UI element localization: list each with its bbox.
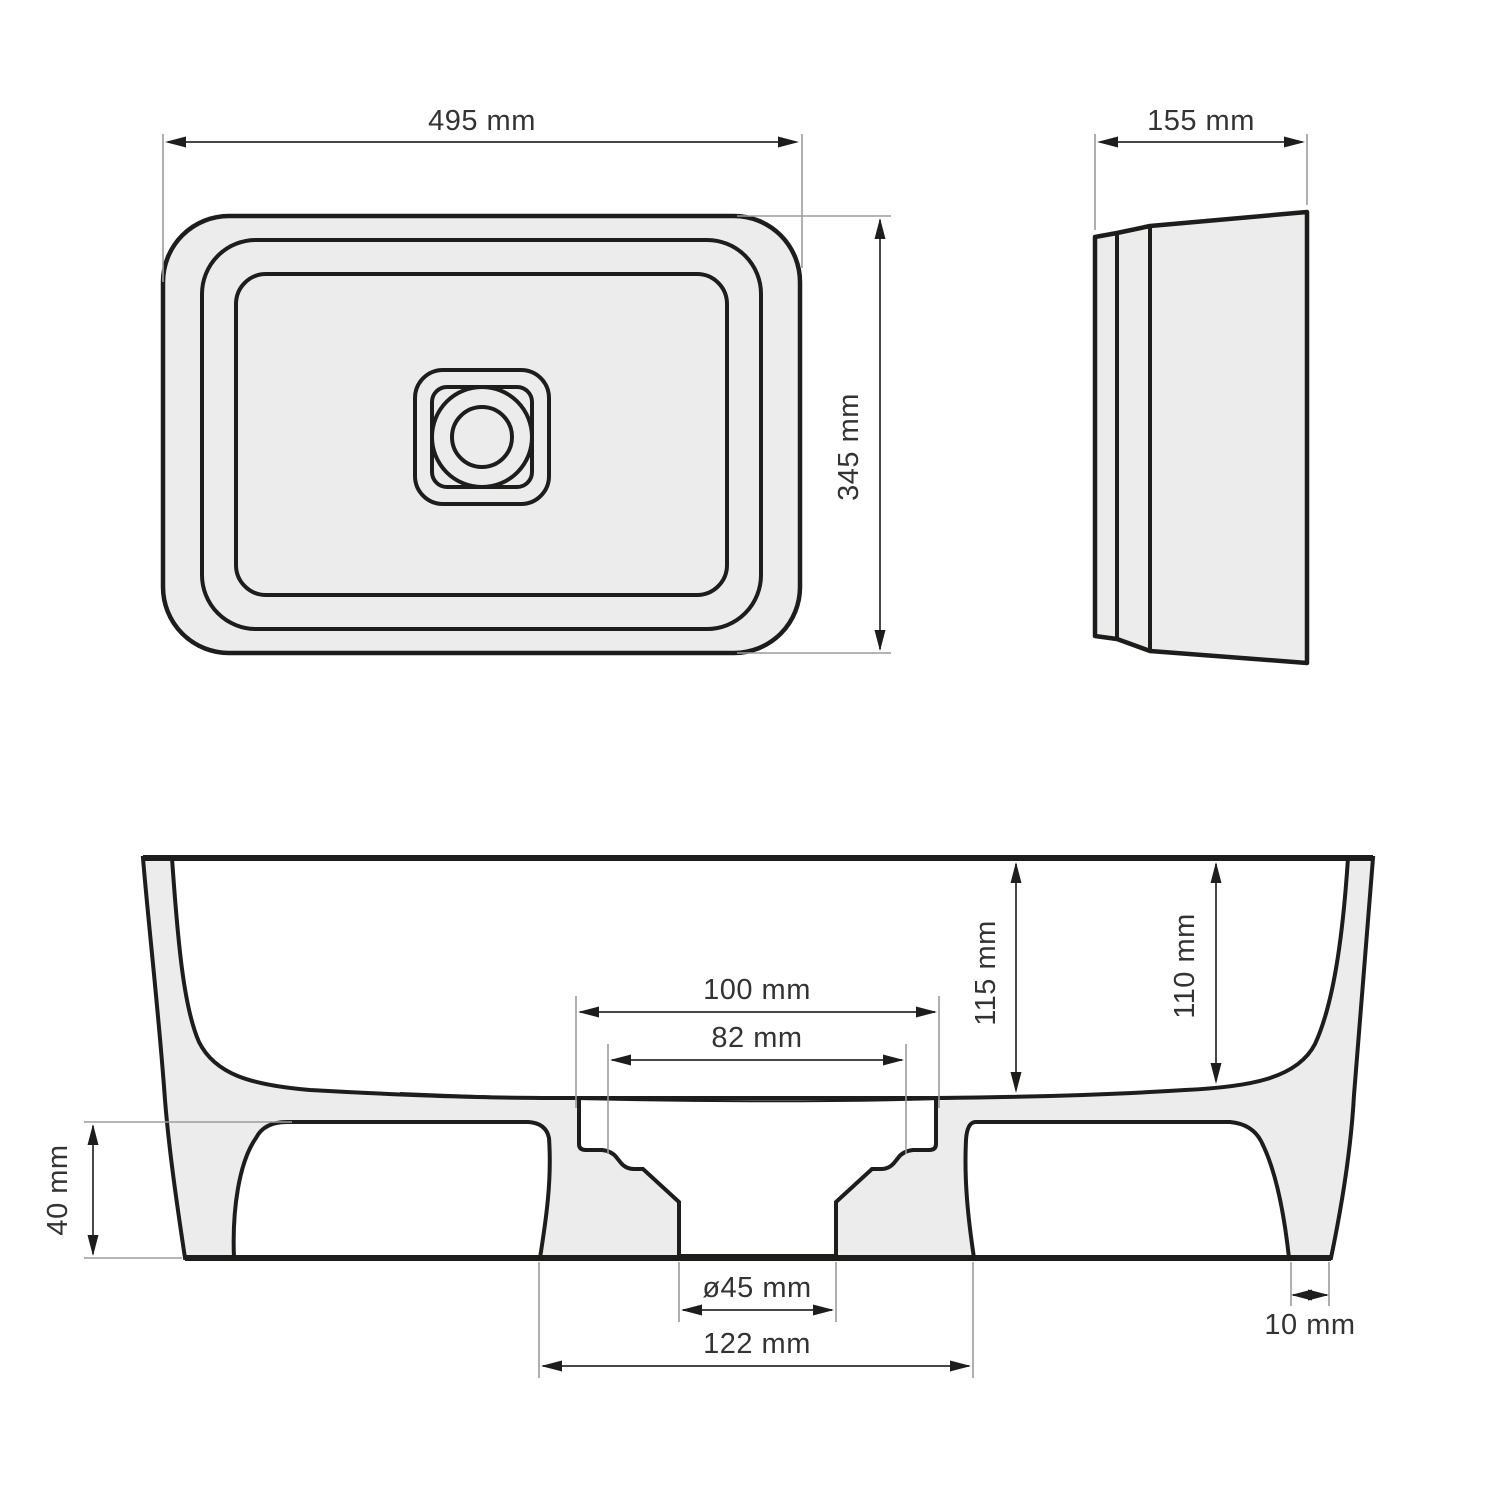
arrowhead-right <box>1308 1290 1329 1301</box>
arrowhead-down <box>1011 1072 1022 1093</box>
arrowhead-down <box>875 630 886 651</box>
dim-depth-center: 115 mm <box>970 862 1022 1093</box>
arrowhead-up <box>88 1124 99 1145</box>
technical-drawing-page: 495 mm 345 mm 155 mm <box>0 0 1500 1500</box>
dim-label-45: ø45 mm <box>702 1272 811 1304</box>
dim-label-10: 10 mm <box>1264 1309 1355 1341</box>
arrowhead-left <box>610 1055 631 1066</box>
arrowhead-up <box>1011 862 1022 883</box>
arrowhead-right <box>883 1055 904 1066</box>
arrowhead-right <box>916 1007 937 1018</box>
arrowhead-left <box>681 1305 702 1316</box>
dim-label-122: 122 mm <box>703 1328 811 1360</box>
dim-label-82: 82 mm <box>711 1022 802 1054</box>
arrowhead-left <box>165 137 186 148</box>
arrowhead-down <box>1211 1063 1222 1084</box>
side-view-profile <box>1095 212 1307 663</box>
arrowhead-left <box>541 1361 562 1372</box>
arrowhead-right <box>1284 137 1305 148</box>
dim-drain-diameter: ø45 mm <box>679 1262 836 1322</box>
arrowhead-right <box>950 1361 971 1372</box>
side-view: 155 mm <box>1095 105 1307 663</box>
dim-foot-width: 10 mm <box>1264 1262 1355 1341</box>
dim-label-115: 115 mm <box>970 920 1002 1026</box>
dim-label-155: 155 mm <box>1147 105 1255 137</box>
arrowhead-right <box>813 1305 834 1316</box>
arrowhead-right <box>778 137 799 148</box>
arrowhead-left <box>578 1007 599 1018</box>
dim-label-100: 100 mm <box>703 974 811 1006</box>
dim-label-110: 110 mm <box>1169 913 1201 1019</box>
dim-label-345: 345 mm <box>833 393 865 501</box>
top-view-drain <box>415 370 549 504</box>
washbasin-drawing-canvas: 495 mm 345 mm 155 mm <box>0 0 1500 1500</box>
dim-recess-inner: 82 mm <box>608 1022 906 1154</box>
arrowhead-up <box>1211 862 1222 883</box>
arrowhead-up <box>875 218 886 239</box>
arrowhead-down <box>88 1235 99 1256</box>
top-view: 495 mm 345 mm <box>163 105 891 653</box>
dim-depth-edge: 110 mm <box>1169 862 1222 1084</box>
dim-side-height: 155 mm <box>1095 105 1307 230</box>
arrowhead-left <box>1097 137 1118 148</box>
dim-label-40: 40 mm <box>42 1144 74 1235</box>
dim-label-495: 495 mm <box>428 105 536 137</box>
section-view: 100 mm 82 mm 115 mm 110 mm <box>42 858 1373 1378</box>
